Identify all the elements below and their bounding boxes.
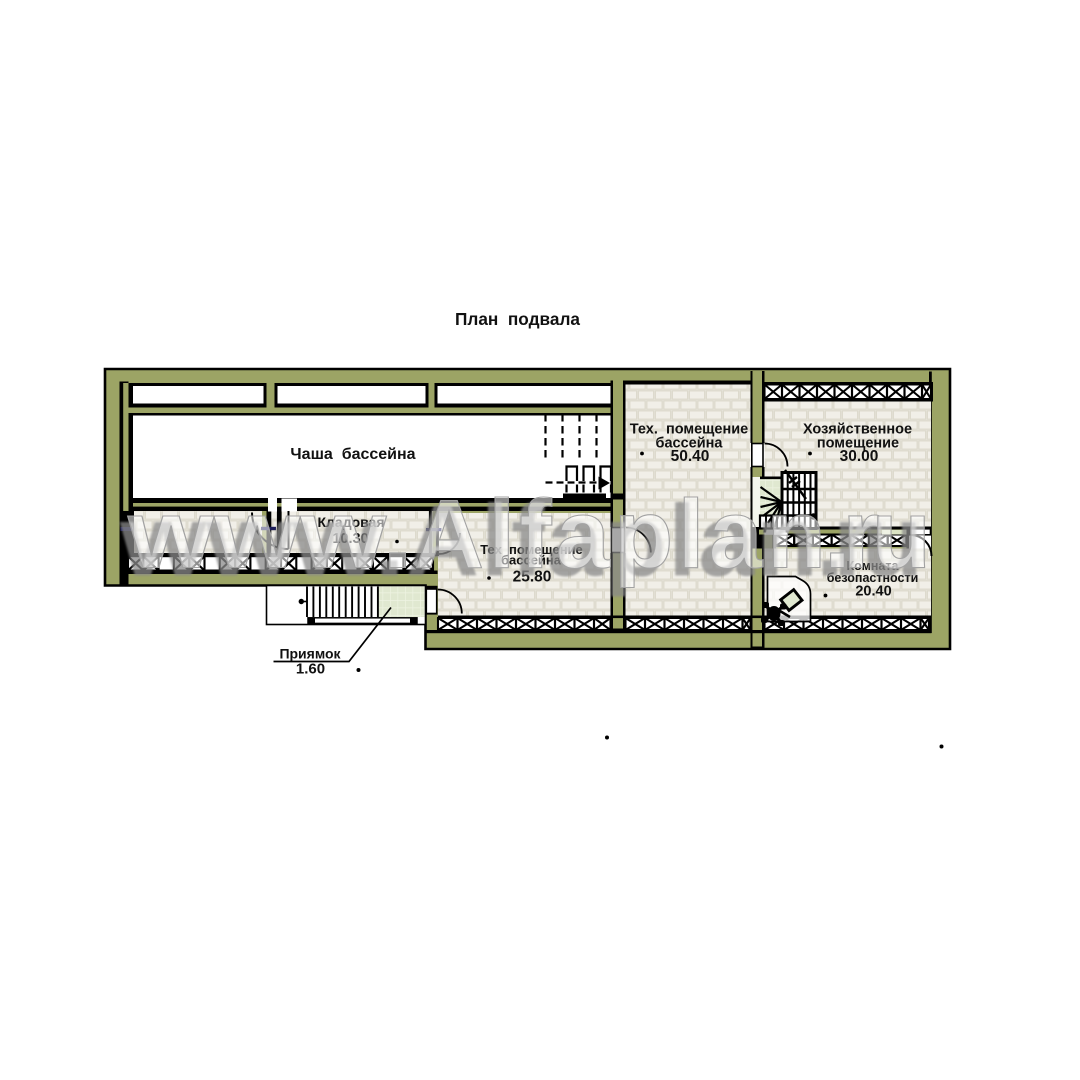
svg-text:50.40: 50.40	[671, 448, 710, 465]
svg-text:План подвала: План подвала	[455, 309, 580, 329]
svg-text:30.00: 30.00	[840, 448, 879, 465]
svg-text:1.60: 1.60	[296, 661, 325, 678]
svg-text:Приямок: Приямок	[279, 646, 341, 662]
svg-text:Чаша бассейна: Чаша бассейна	[290, 446, 415, 463]
svg-text:.ru: .ru	[824, 480, 931, 589]
svg-text:www.: www.	[127, 480, 413, 589]
